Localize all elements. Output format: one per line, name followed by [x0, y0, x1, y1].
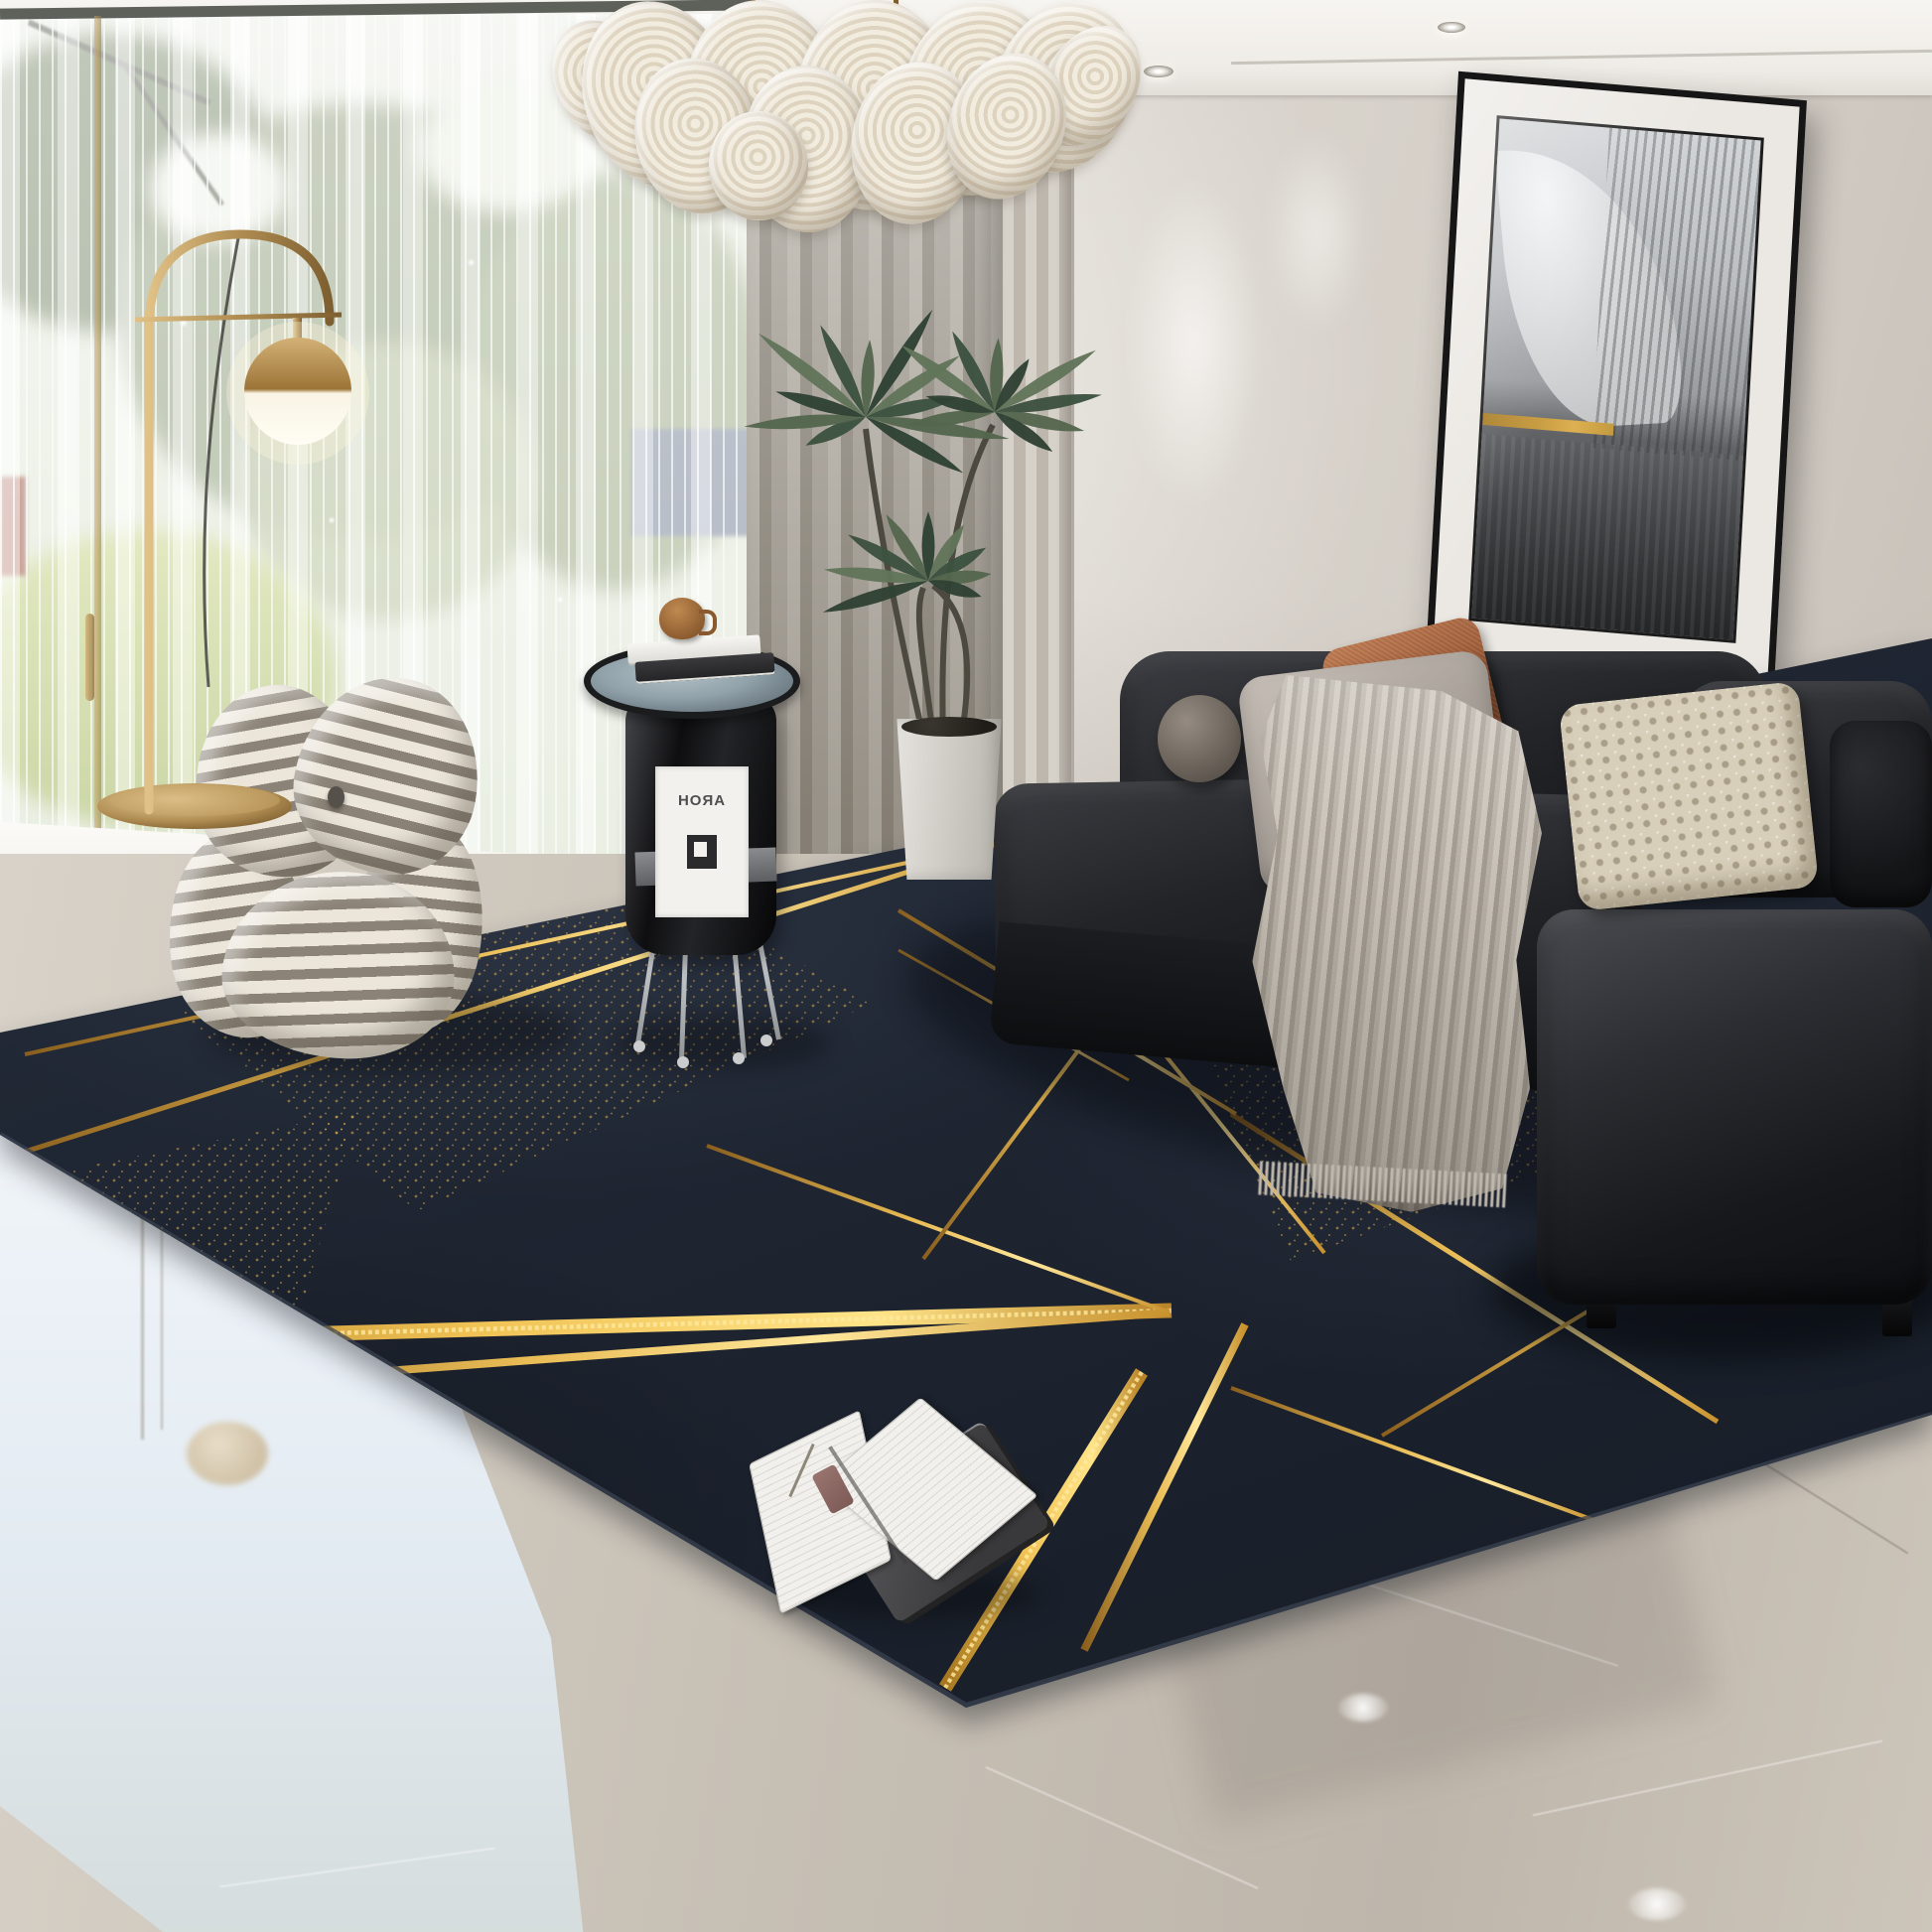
living-room-scene: HOЯA [0, 0, 1932, 1932]
table-caster [677, 1056, 689, 1068]
plant-pot-soil [901, 717, 997, 737]
ball-pillow [1158, 695, 1241, 782]
table-poster-logo [687, 835, 717, 869]
table-poster: HOЯA [655, 766, 749, 917]
cream-knit-pillow [1559, 681, 1819, 911]
armchair-button [328, 786, 345, 808]
table-caster [760, 1035, 772, 1046]
table-poster-text: HOЯA [678, 792, 726, 809]
table-cup-handle [699, 610, 717, 635]
black-leather-pillow [1830, 721, 1932, 907]
plant-pot [894, 719, 1005, 880]
sofa-ottoman [1537, 909, 1932, 1305]
table-caster [633, 1040, 645, 1052]
table-caster [733, 1052, 745, 1064]
